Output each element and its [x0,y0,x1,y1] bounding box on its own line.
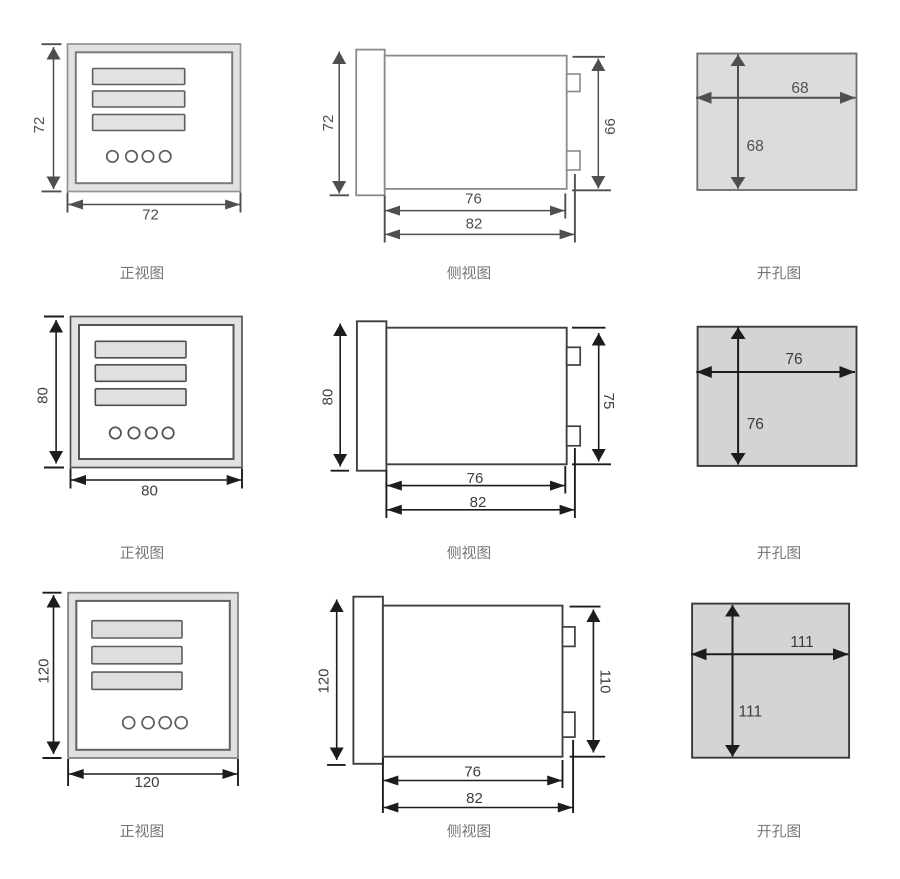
svg-text:66: 66 [602,118,619,135]
svg-text:72: 72 [320,115,337,132]
svg-text:76: 76 [785,351,802,368]
svg-text:82: 82 [470,494,487,511]
svg-text:72: 72 [142,207,159,224]
svg-text:120: 120 [134,774,159,791]
svg-text:82: 82 [466,216,483,233]
svg-text:111: 111 [790,634,814,651]
svg-text:80: 80 [35,387,52,404]
svg-text:72: 72 [31,117,48,134]
svg-text:120: 120 [316,668,333,693]
svg-text:80: 80 [141,483,158,500]
svg-text:76: 76 [465,191,482,208]
svg-text:68: 68 [791,80,808,97]
svg-text:111: 111 [739,704,763,721]
svg-text:120: 120 [35,658,52,683]
svg-text:75: 75 [600,393,617,410]
svg-text:76: 76 [464,764,481,781]
svg-text:80: 80 [320,389,337,406]
svg-text:76: 76 [747,416,764,433]
svg-text:110: 110 [597,670,614,694]
svg-text:68: 68 [747,138,764,155]
svg-text:82: 82 [466,790,483,807]
svg-text:76: 76 [467,470,484,487]
